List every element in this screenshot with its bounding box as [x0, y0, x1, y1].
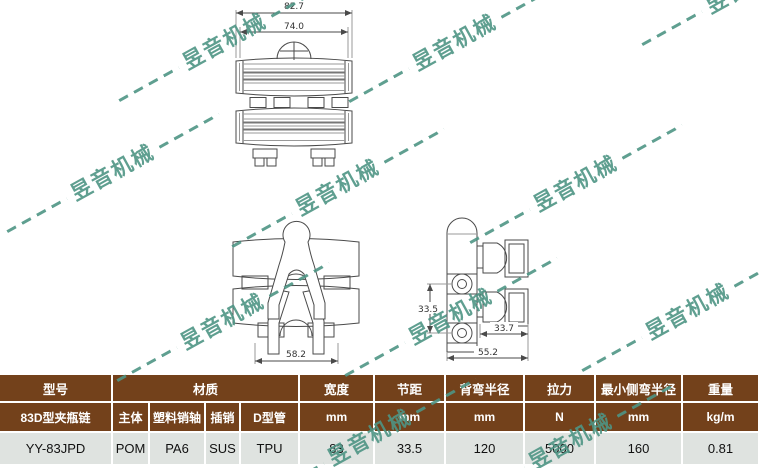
watermark-stripe: 昱音机械: [2, 105, 224, 241]
watermark-stripe: 昱音机械: [344, 0, 566, 111]
spec-table: 型号 材质 宽度 节距 背弯半径 拉力 最小侧弯半径 重量 83D型夹瓶链 主体…: [0, 373, 760, 466]
table-header-row: 型号 材质 宽度 节距 背弯半径 拉力 最小侧弯半径 重量: [0, 375, 758, 401]
front-view-drawing: 58.2: [228, 215, 364, 367]
value-model: YY-83JPD: [0, 433, 111, 464]
watermark-stripe: 昱音机械: [577, 244, 762, 380]
watermark-text: 昱音机械: [531, 153, 622, 216]
header-min-sidebend-radius: 最小侧弯半径: [596, 375, 681, 401]
value-weight: 0.81: [683, 433, 758, 464]
value-min-sidebend-radius: 160: [596, 433, 681, 464]
value-width: 83: [300, 433, 373, 464]
watermark-text: 昱音机械: [643, 281, 734, 344]
subheader-product-type: 83D型夹瓶链: [0, 403, 111, 431]
subheader-body: 主体: [113, 403, 148, 431]
unit-weight: kg/m: [683, 403, 758, 431]
watermark-stripe: 昱音机械: [637, 0, 762, 54]
watermark-dash: [642, 11, 703, 46]
table-value-row: YY-83JPD POM PA6 SUS TPU 83 33.5 120 500…: [0, 433, 758, 464]
watermark-text: 昱音机械: [68, 142, 159, 205]
value-backbend-radius: 120: [446, 433, 523, 464]
value-plastic-pin-material: PA6: [150, 433, 204, 464]
header-backbend-radius: 背弯半径: [446, 375, 523, 401]
header-pitch: 节距: [375, 375, 444, 401]
watermark-text: 昱音机械: [410, 12, 501, 75]
watermark-dash: [622, 124, 683, 159]
unit-sidebend: mm: [596, 403, 681, 431]
watermark-dash: [7, 198, 68, 233]
side-view-drawing: 33.5 33.7 55.2: [410, 212, 538, 364]
unit-pitch: mm: [375, 403, 444, 431]
value-pin-material: SUS: [206, 433, 239, 464]
watermark-dash: [119, 67, 180, 102]
dim-label-inner-width: 74.0: [284, 22, 304, 32]
table-subheader-row: 83D型夹瓶链 主体 塑料销轴 插销 D型管 mm mm mm N mm kg/…: [0, 403, 758, 431]
watermark-dash: [384, 128, 445, 163]
dim-label-front-width: 58.2: [286, 350, 306, 360]
top-view-drawing: 82.7 74.0: [228, 0, 360, 168]
dim-label-depth: 33.7: [494, 324, 514, 334]
header-model: 型号: [0, 375, 111, 401]
watermark-dash: [501, 0, 562, 18]
unit-tension: N: [525, 403, 594, 431]
dim-label-pitch: 33.5: [418, 305, 438, 315]
header-width: 宽度: [300, 375, 373, 401]
value-d-tube-material: TPU: [241, 433, 298, 464]
unit-width: mm: [300, 403, 373, 431]
dim-label-side-width: 55.2: [478, 348, 498, 358]
subheader-pin: 插销: [206, 403, 239, 431]
header-weight: 重量: [683, 375, 758, 401]
watermark-dash: [734, 252, 762, 287]
header-material: 材质: [113, 375, 298, 401]
watermark-dash: [159, 113, 220, 148]
datasheet-page: 82.7 74.0: [0, 0, 762, 468]
value-body-material: POM: [113, 433, 148, 464]
watermark-text: 昱音机械: [703, 0, 762, 17]
watermark-dash: [582, 337, 643, 372]
value-tension: 5000: [525, 433, 594, 464]
header-tension: 拉力: [525, 375, 594, 401]
subheader-d-tube: D型管: [241, 403, 298, 431]
subheader-plastic-pin: 塑料销轴: [150, 403, 204, 431]
value-pitch: 33.5: [375, 433, 444, 464]
dim-label-outer-width: 82.7: [284, 2, 304, 12]
unit-backbend: mm: [446, 403, 523, 431]
